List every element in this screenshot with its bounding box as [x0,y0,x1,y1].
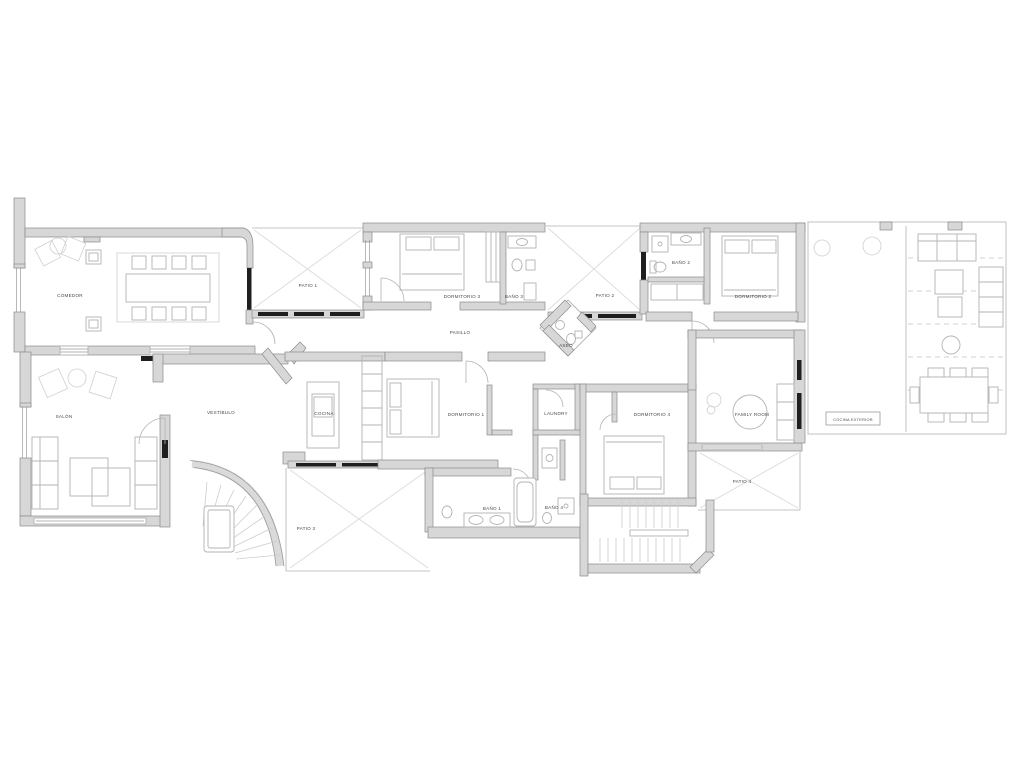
room-laundry [533,384,581,480]
bathroom-2-fixtures [650,233,701,273]
bathroom-3-fixtures [508,236,536,300]
patio-1 [252,228,364,318]
label-patio-4: PATIO 4 [733,479,752,484]
outdoor-dining-table [910,368,998,422]
label-patio-3: PATIO 3 [297,526,316,531]
room-comedor [14,198,275,355]
lounge-chairs [35,236,86,266]
room-dormitorio-1 [378,352,545,469]
bed-dormitorio-4 [604,436,664,494]
terrace [808,222,1006,434]
label-dormitorio-3: DORMITORIO 3 [444,294,481,299]
label-salon: SALÓN [56,413,73,419]
salon-sofa [32,437,58,509]
bathtub [514,478,536,526]
bed-dormitorio-3 [400,234,464,290]
salon-coffee-tables [70,458,130,506]
floorplan-svg: COMEDOR PATIO 1 DORMITORIO 3 BAÑO 3 PASI… [0,0,1024,768]
bed-dormitorio-2 [722,236,778,296]
label-bano-1: BAÑO 1 [483,505,502,511]
kitchen-cabinets [362,356,382,460]
room-dormitorio-2 [640,223,805,343]
label-patio-1: PATIO 1 [299,283,318,288]
elevator [204,506,234,552]
label-dormitorio-4: DORMITORIO 4 [634,412,671,417]
label-bano-2: BAÑO 2 [672,259,691,265]
patio-3 [283,452,430,571]
double-vanity [464,513,510,527]
outdoor-side-table [942,336,960,354]
label-family-room: FAMILY ROOM [735,412,769,417]
bed-dormitorio-1 [387,379,439,437]
label-laundry: LAUNDRY [544,411,568,416]
label-cocina-exterior: COCINA EXTERIOR [833,417,873,422]
outdoor-armchair [935,270,963,317]
outdoor-shelf [979,267,1003,327]
outdoor-sofa [918,234,976,261]
salon-armchairs [38,368,116,398]
room-bano-1 [425,468,580,538]
label-bano-4: BAÑO 4 [545,504,564,510]
spiral-stair [190,461,284,567]
room-bano-4 [543,498,575,524]
dining-table [117,253,219,322]
label-patio-2: PATIO 2 [596,293,615,298]
label-comedor: COMEDOR [57,293,83,298]
room-salon [20,352,170,527]
salon-shelf [135,437,157,509]
label-vestibulo: VESTÍBULO [207,409,235,415]
label-dormitorio-1: DORMITORIO 1 [448,412,485,417]
family-shelf [777,384,794,440]
label-bano-3: BAÑO 3 [505,293,524,299]
label-cocina: COCINA [314,411,334,416]
label-pasillo: PASILLO [450,330,471,335]
room-dormitorio-4 [580,384,696,506]
label-dormitorio-2: DORMITORIO 2 [735,294,772,299]
label-aseo: ASEO [559,343,573,348]
room-cocina [285,352,385,460]
